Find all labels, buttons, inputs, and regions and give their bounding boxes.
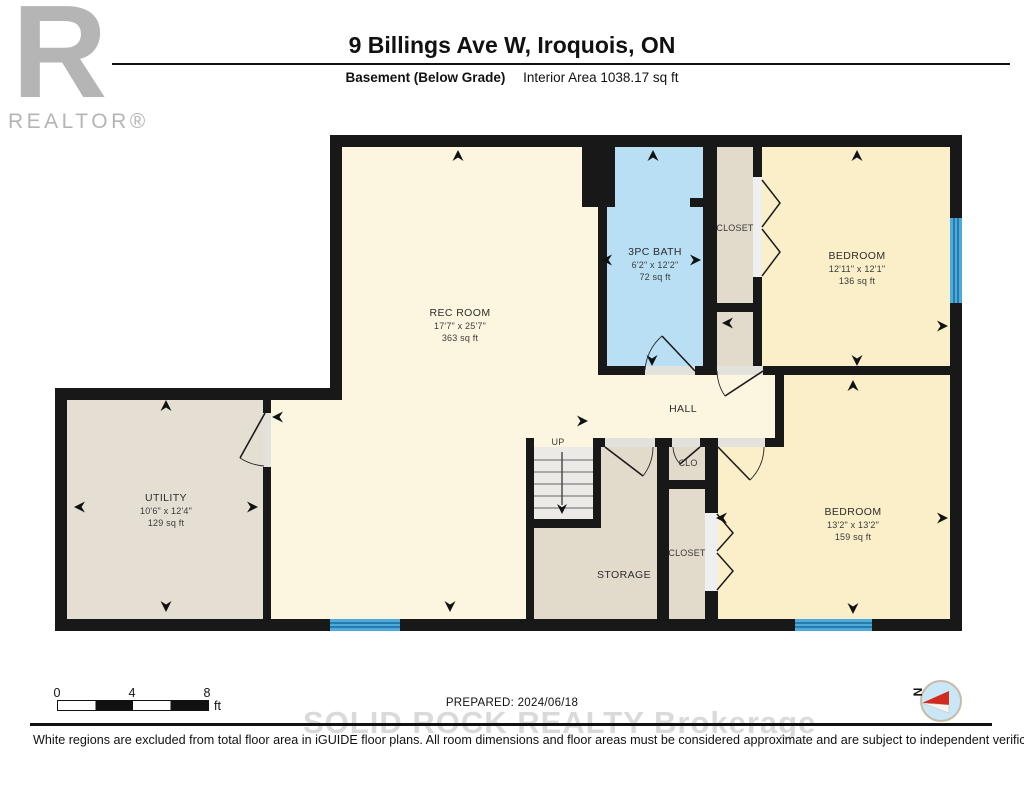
bath-dims: 6'2" x 12'2": [632, 260, 679, 270]
wall-segment: [55, 388, 342, 400]
wall-segment: [657, 438, 669, 619]
wall-segment: [598, 203, 607, 375]
utility-area: 129 sq ft: [148, 518, 185, 528]
wall-segment: [582, 135, 615, 207]
wall-segment: [526, 438, 534, 619]
wall-segment: [763, 366, 950, 375]
wall-segment: [703, 135, 717, 375]
wall-segment: [669, 480, 705, 489]
bedroom-top-area: 136 sq ft: [839, 276, 876, 286]
wall-segment: [695, 366, 717, 375]
utility-dims: 10'6" x 12'4": [140, 506, 192, 516]
disclaimer-text: White regions are excluded from total fl…: [33, 733, 1024, 747]
wall-segment: [753, 135, 762, 177]
wall-segment: [330, 135, 962, 147]
bedroom-top-label: BEDROOM: [828, 250, 885, 262]
wall-segment: [705, 591, 718, 619]
wall-segment: [705, 447, 718, 513]
wall-segment: [753, 277, 762, 375]
compass-north-label: N: [911, 688, 925, 697]
wall-segment: [330, 135, 342, 400]
door-sill: [605, 438, 655, 447]
door-sill: [263, 413, 271, 467]
wall-segment: [55, 388, 67, 631]
wall-segment: [263, 398, 271, 413]
rec-room-area: 363 sq ft: [442, 333, 479, 343]
wall-segment: [690, 198, 703, 207]
window: [330, 619, 400, 631]
closet-top-label: CLOSET: [716, 223, 754, 233]
door-sill: [717, 366, 763, 375]
closet-opening: [753, 177, 762, 277]
stairs-up-label: UP: [552, 437, 565, 447]
floorplan-drawing: REC ROOM 17'7" x 25'7" 363 sq ft UTILITY…: [0, 0, 1024, 791]
rec-room-label: REC ROOM: [430, 307, 491, 319]
wall-segment: [700, 438, 718, 447]
wall-segment: [765, 438, 784, 447]
floorplan-page: R REALTOR® 9 Billings Ave W, Iroquois, O…: [0, 0, 1024, 791]
bath-area: 72 sq ft: [639, 272, 670, 282]
window: [950, 218, 962, 303]
wall-segment: [263, 467, 271, 619]
door-sill: [645, 366, 695, 375]
storage-label: STORAGE: [597, 569, 651, 581]
window: [795, 619, 872, 631]
clo-label: CLO: [678, 458, 697, 468]
room-closet-top: [717, 141, 753, 366]
hall-label: HALL: [669, 403, 697, 415]
utility-label: UTILITY: [145, 492, 187, 504]
door-sill: [672, 438, 700, 447]
closet-bottom-label: CLOSET: [668, 548, 706, 558]
bedroom-bottom-dims: 13'2" x 13'2": [827, 520, 879, 530]
rec-room-dims: 17'7" x 25'7": [434, 321, 486, 331]
bedroom-top-dims: 12'11" x 12'1": [829, 264, 886, 274]
bath-label: 3PC BATH: [628, 246, 682, 258]
wall-segment: [534, 519, 593, 528]
wall-segment: [950, 135, 962, 631]
wall-segment: [598, 366, 645, 375]
footer-divider: [30, 723, 992, 726]
wall-segment: [775, 375, 784, 447]
bedroom-bottom-label: BEDROOM: [824, 506, 881, 518]
closet-opening: [705, 513, 718, 591]
bedroom-bottom-area: 159 sq ft: [835, 532, 872, 542]
door-sill: [718, 438, 765, 447]
wall-segment: [593, 438, 601, 528]
